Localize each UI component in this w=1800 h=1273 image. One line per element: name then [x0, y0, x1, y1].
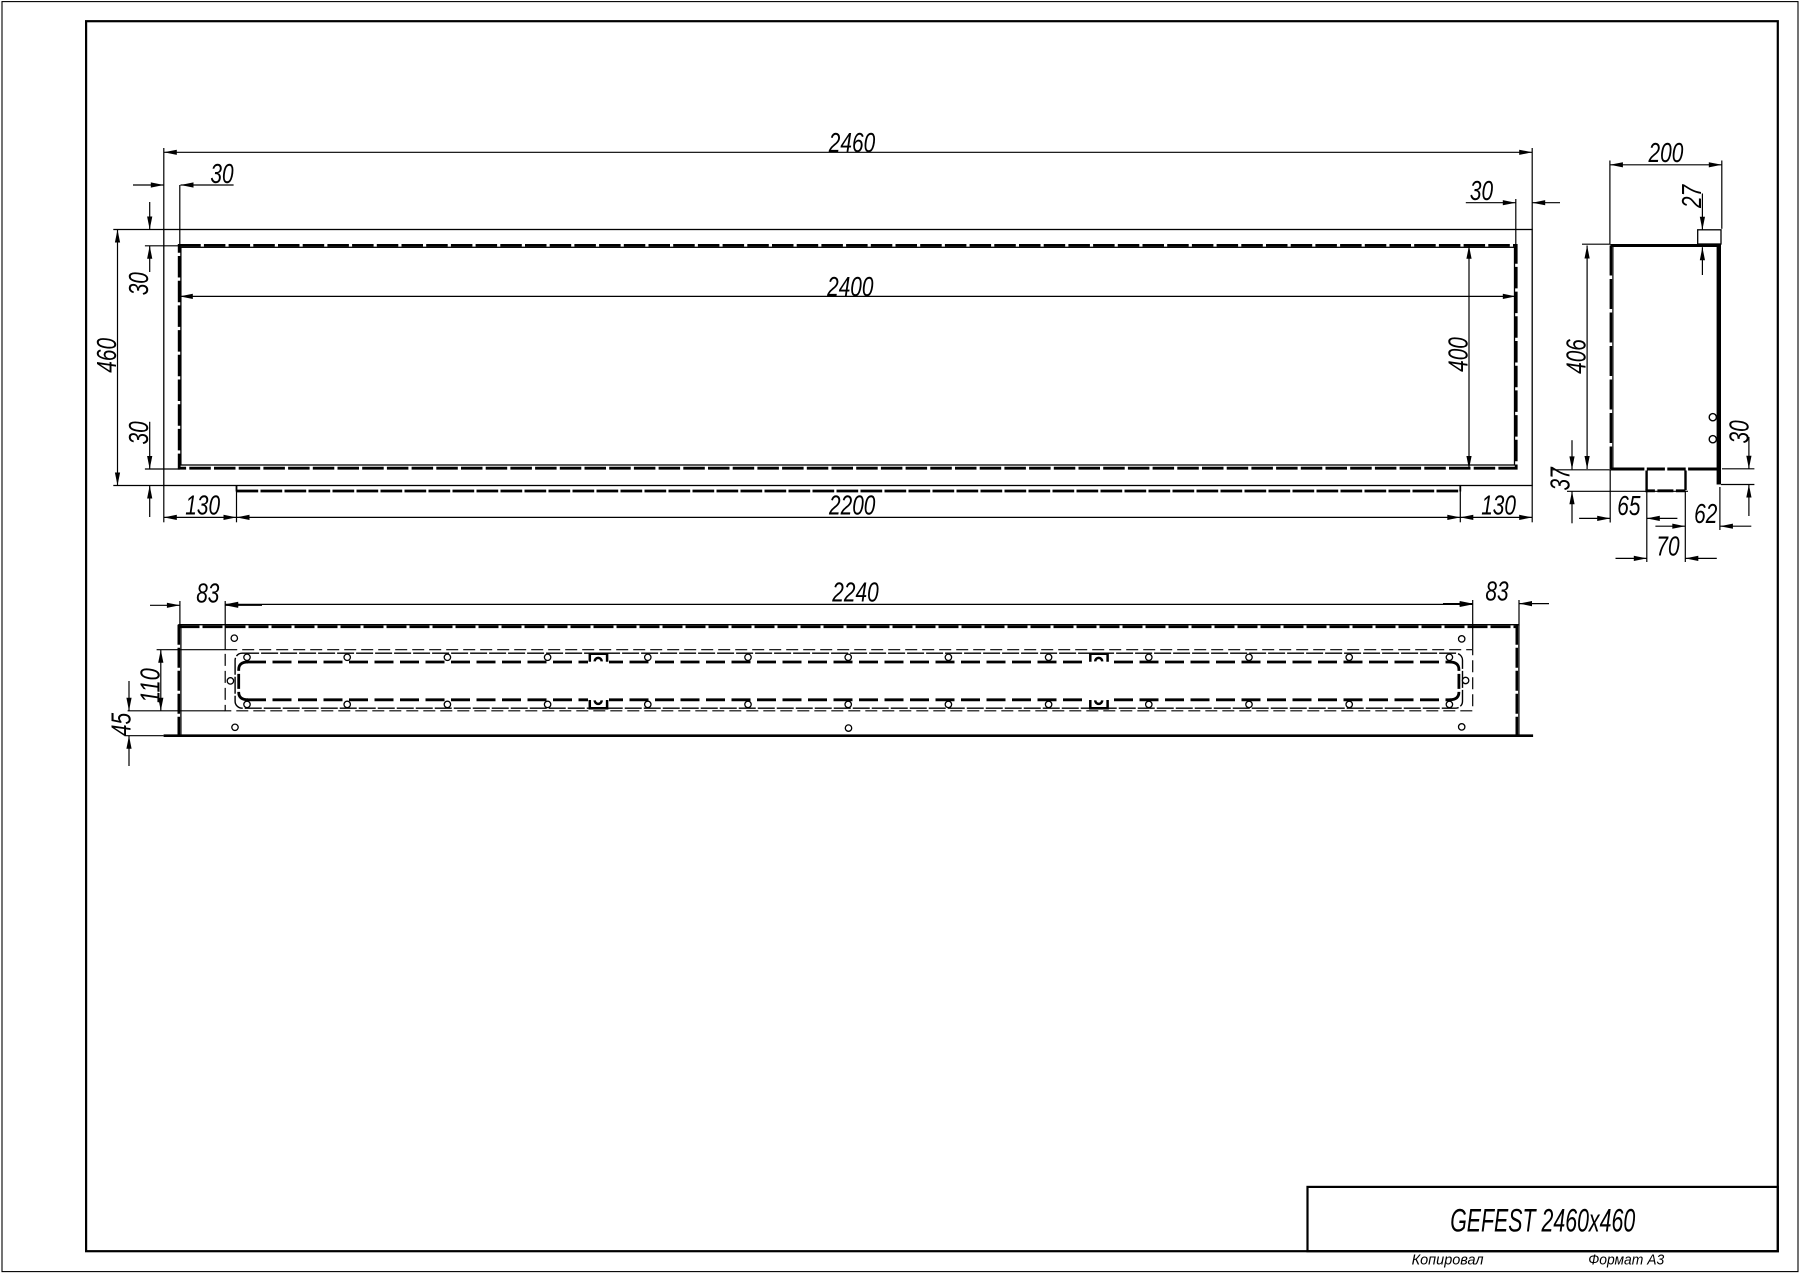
- svg-text:Формат А3: Формат А3: [1588, 1252, 1664, 1268]
- svg-text:2240: 2240: [832, 576, 879, 607]
- svg-text:460: 460: [91, 338, 122, 373]
- svg-text:400: 400: [1443, 337, 1474, 372]
- svg-text:2400: 2400: [826, 271, 873, 302]
- svg-text:37: 37: [1544, 466, 1575, 490]
- svg-text:45: 45: [105, 713, 136, 737]
- svg-text:83: 83: [1485, 576, 1509, 607]
- svg-text:2460: 2460: [828, 127, 875, 158]
- svg-text:Копировал: Копировал: [1412, 1252, 1484, 1268]
- svg-text:30: 30: [123, 421, 154, 445]
- svg-text:65: 65: [1617, 490, 1641, 521]
- svg-text:110: 110: [134, 668, 165, 703]
- svg-text:30: 30: [210, 158, 234, 189]
- svg-text:70: 70: [1656, 530, 1680, 561]
- svg-text:406: 406: [1560, 339, 1591, 374]
- svg-text:130: 130: [1481, 489, 1516, 520]
- svg-text:62: 62: [1694, 498, 1718, 529]
- svg-text:27: 27: [1676, 184, 1707, 209]
- svg-text:GEFEST 2460x460: GEFEST 2460x460: [1450, 1203, 1635, 1239]
- svg-text:83: 83: [196, 577, 220, 608]
- svg-text:30: 30: [1723, 420, 1754, 444]
- svg-text:30: 30: [123, 272, 154, 296]
- svg-text:30: 30: [1470, 175, 1494, 206]
- svg-text:200: 200: [1648, 137, 1684, 168]
- svg-text:2200: 2200: [828, 489, 875, 520]
- svg-text:130: 130: [185, 489, 220, 520]
